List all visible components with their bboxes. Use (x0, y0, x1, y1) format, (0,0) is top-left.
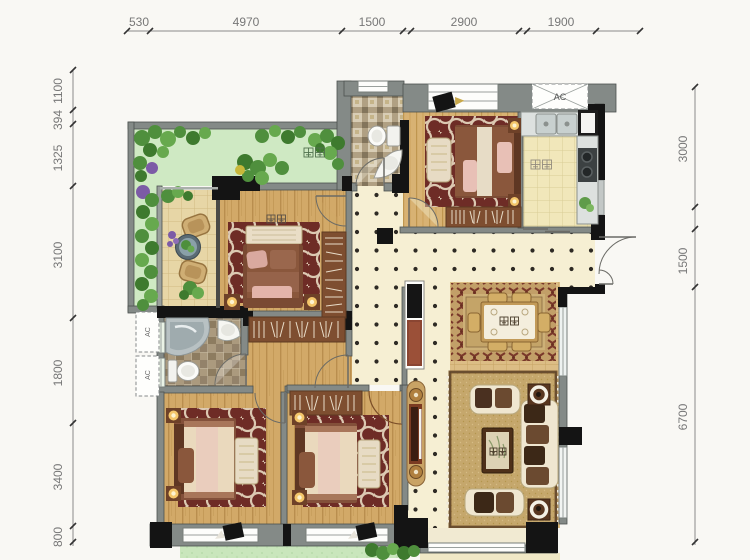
svg-text:4970: 4970 (233, 15, 260, 29)
svg-text:800: 800 (51, 527, 65, 547)
svg-text:1100: 1100 (51, 78, 65, 104)
svg-text:394: 394 (51, 110, 65, 130)
svg-text:3100: 3100 (51, 241, 65, 268)
svg-text:AC: AC (145, 370, 152, 380)
svg-text:1325: 1325 (51, 144, 65, 171)
svg-text:2900: 2900 (451, 15, 478, 29)
svg-text:1900: 1900 (548, 15, 575, 29)
svg-text:3400: 3400 (51, 463, 65, 490)
svg-text:1500: 1500 (676, 247, 690, 274)
svg-text:AC: AC (145, 327, 152, 337)
svg-text:530: 530 (129, 15, 149, 29)
svg-text:AC: AC (554, 92, 567, 102)
svg-text:1500: 1500 (359, 15, 386, 29)
svg-text:3000: 3000 (676, 135, 690, 162)
svg-text:1800: 1800 (51, 359, 65, 386)
svg-text:6700: 6700 (676, 403, 690, 430)
